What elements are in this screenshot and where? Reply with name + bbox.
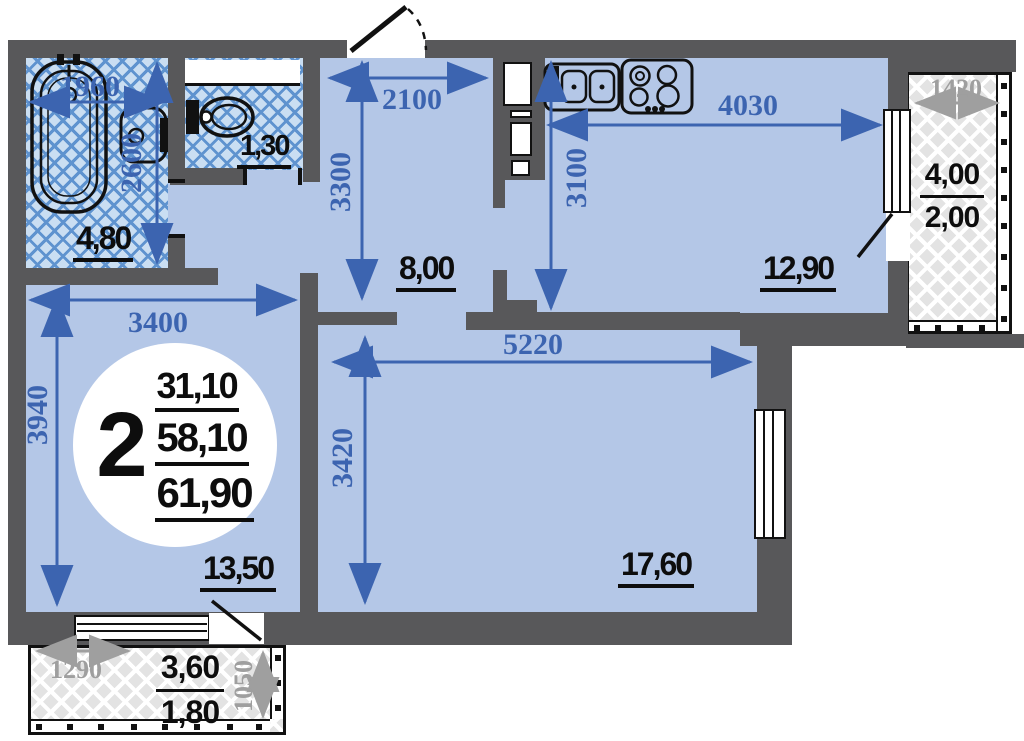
unit-total-area: 58,10 — [155, 418, 249, 466]
balcony-bottom-area-total: 3,60 — [156, 650, 224, 692]
dim-kitchen-width: 4030 — [718, 91, 778, 121]
entrance-door — [351, 7, 426, 51]
dim-bedroom-depth: 3940 — [23, 385, 53, 445]
unit-areas: 31,10 58,10 61,90 — [155, 368, 254, 522]
area-hallway: 8,00 — [396, 252, 456, 292]
living-room-window — [755, 410, 785, 538]
area-balcony-right: 4,00 2,00 — [912, 158, 992, 234]
unit-info-badge: 2 31,10 58,10 61,90 — [73, 343, 277, 547]
area-kitchen: 12,90 — [760, 252, 836, 292]
dim-living-width: 5220 — [503, 330, 563, 360]
bedroom-balcony-door — [209, 601, 264, 644]
dim-balcony-bottom-depth: 1050 — [231, 660, 257, 712]
area-living-room: 17,60 — [618, 548, 694, 588]
dim-balcony-bottom-width: 1290 — [50, 657, 102, 683]
dim-bathroom-width: 1960 — [60, 72, 120, 102]
dim-hallway-depth: 3300 — [326, 152, 356, 212]
kitchen-balcony-door — [858, 213, 910, 261]
kitchen-sink-icon — [545, 64, 619, 110]
dim-living-depth: 3420 — [328, 428, 358, 488]
unit-living-area: 31,10 — [155, 368, 239, 412]
stove-icon — [622, 60, 692, 113]
area-toilet: 1,30 — [237, 132, 291, 169]
dim-balcony-right-width: 1420 — [930, 76, 982, 102]
bedroom-window — [75, 616, 209, 640]
dim-hallway-width: 2100 — [382, 85, 442, 115]
dim-kitchen-depth: 3100 — [562, 148, 592, 208]
area-bathroom: 4,80 — [73, 222, 133, 262]
balcony-right-area-total: 4,00 — [920, 158, 984, 198]
dim-bedroom-width: 3400 — [128, 308, 188, 338]
unit-overall-area: 61,90 — [155, 472, 254, 522]
balcony-right-area-counted: 2,00 — [912, 198, 992, 235]
floor-plan: 1960 2600 2100 3300 4030 3100 3400 3940 … — [0, 0, 1024, 741]
dim-bathroom-depth: 2600 — [117, 133, 147, 193]
area-bedroom: 13,50 — [200, 552, 276, 592]
kitchen-balcony-window — [884, 110, 910, 212]
rooms-count: 2 — [96, 399, 144, 491]
balcony-bottom-area-counted: 1,80 — [146, 692, 234, 731]
area-balcony-bottom: 3,60 1,80 — [146, 650, 234, 731]
